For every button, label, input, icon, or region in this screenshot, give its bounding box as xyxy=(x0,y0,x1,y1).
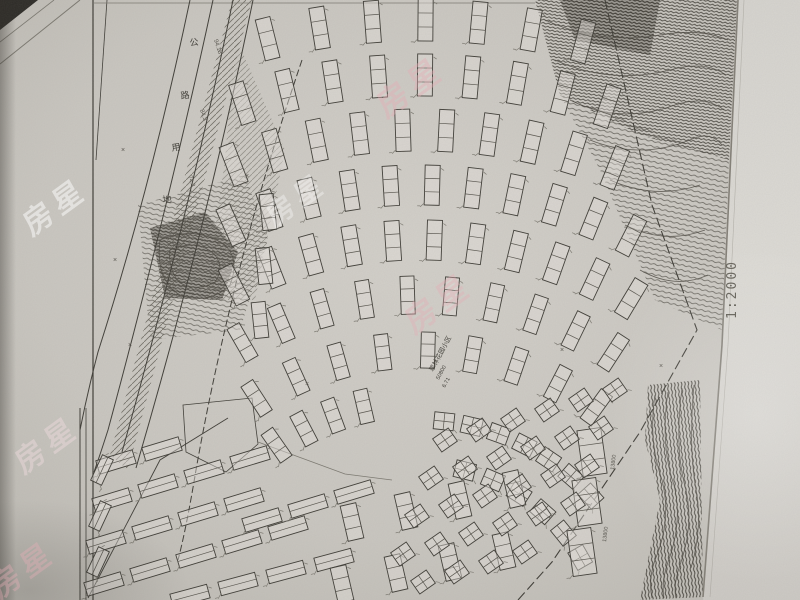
map-scale-label: 1:2000 xyxy=(725,260,740,319)
scanned-site-plan-photo: 公路用地94.1884.374.31380013800××××××××翠林花园小… xyxy=(0,0,800,600)
site-plan-map: 公路用地94.1884.374.31380013800××××××××翠林花园小… xyxy=(0,0,800,600)
